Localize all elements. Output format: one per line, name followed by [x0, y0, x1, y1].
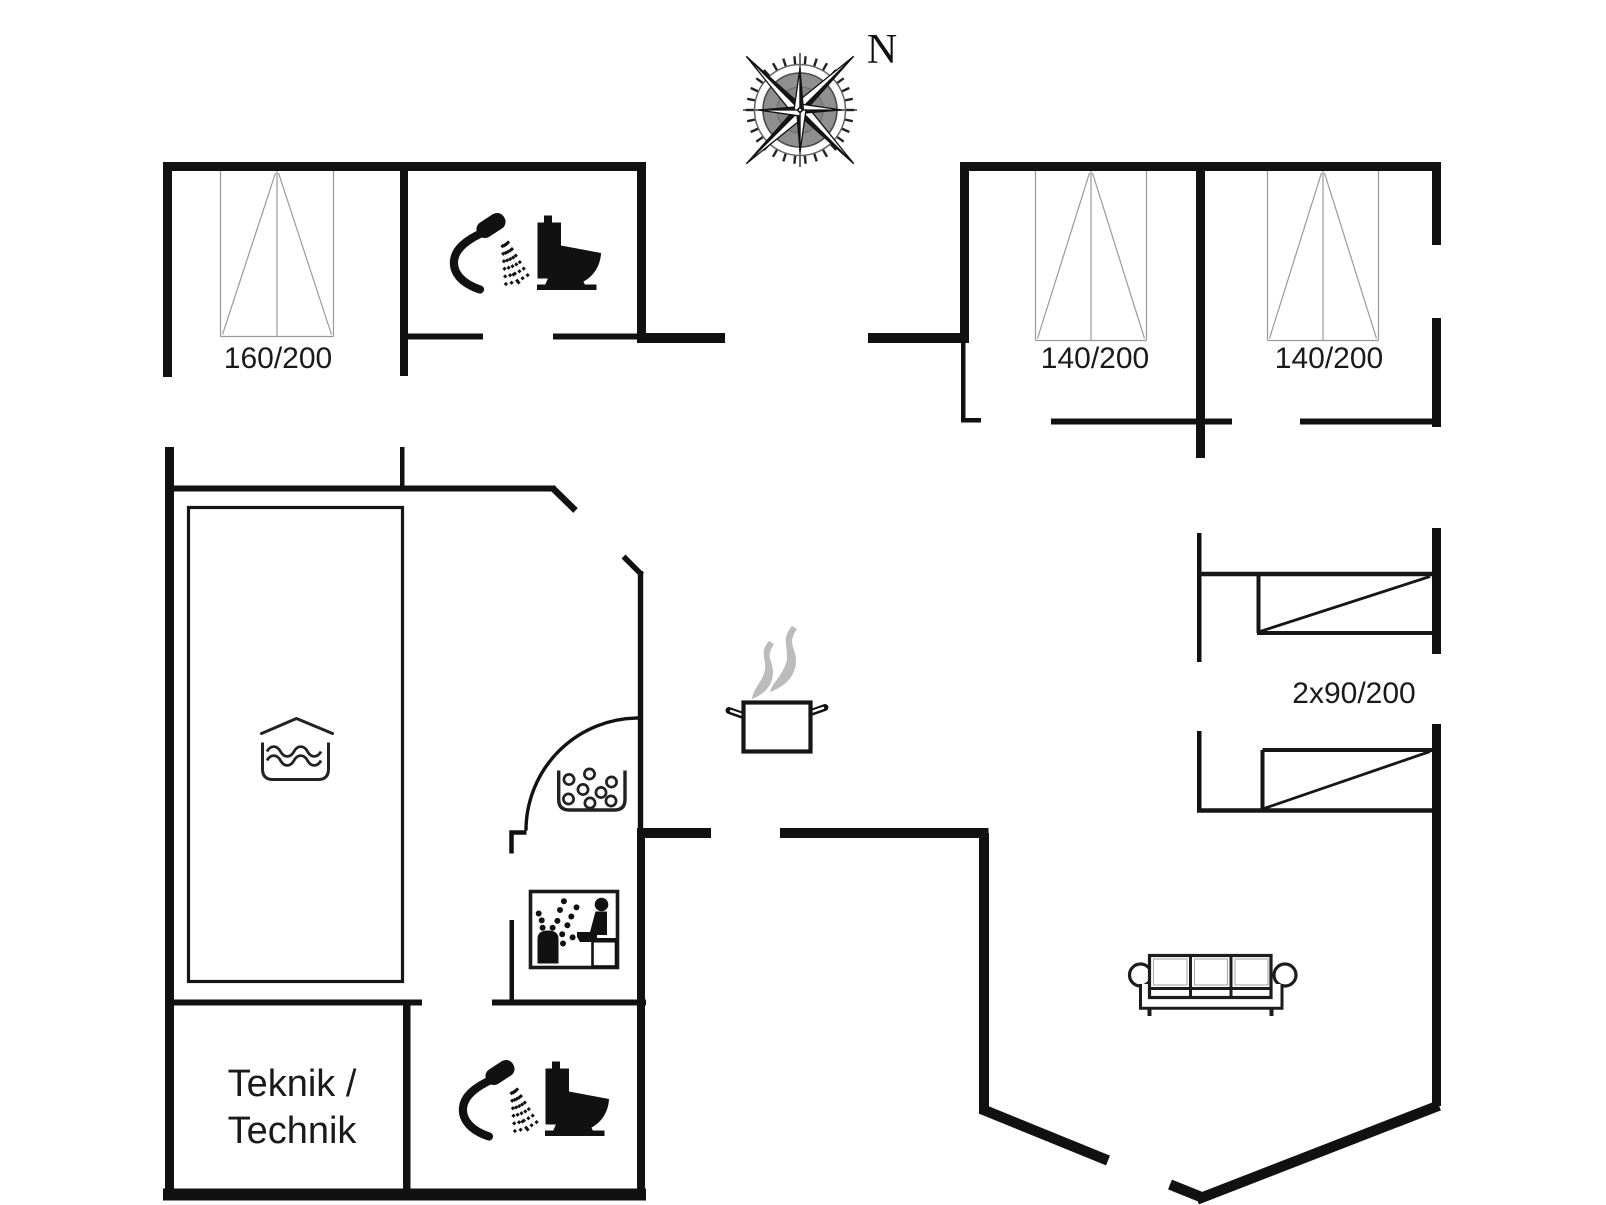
svg-text:160/200: 160/200 — [224, 342, 332, 375]
svg-text:Teknik /: Teknik / — [228, 1063, 357, 1105]
svg-text:140/200: 140/200 — [1275, 342, 1383, 375]
svg-text:N: N — [867, 27, 897, 73]
svg-text:140/200: 140/200 — [1041, 342, 1149, 375]
svg-text:2x90/200: 2x90/200 — [1292, 677, 1415, 710]
svg-text:Technik: Technik — [228, 1110, 358, 1152]
